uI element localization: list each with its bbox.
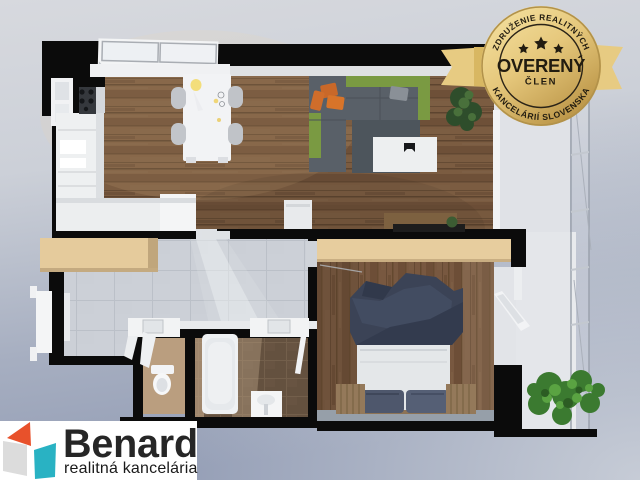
svg-text:realitná kancelária: realitná kancelária [64,460,198,477]
svg-text:ČLEN: ČLEN [525,76,557,88]
svg-text:OVERENÝ: OVERENÝ [497,55,586,76]
